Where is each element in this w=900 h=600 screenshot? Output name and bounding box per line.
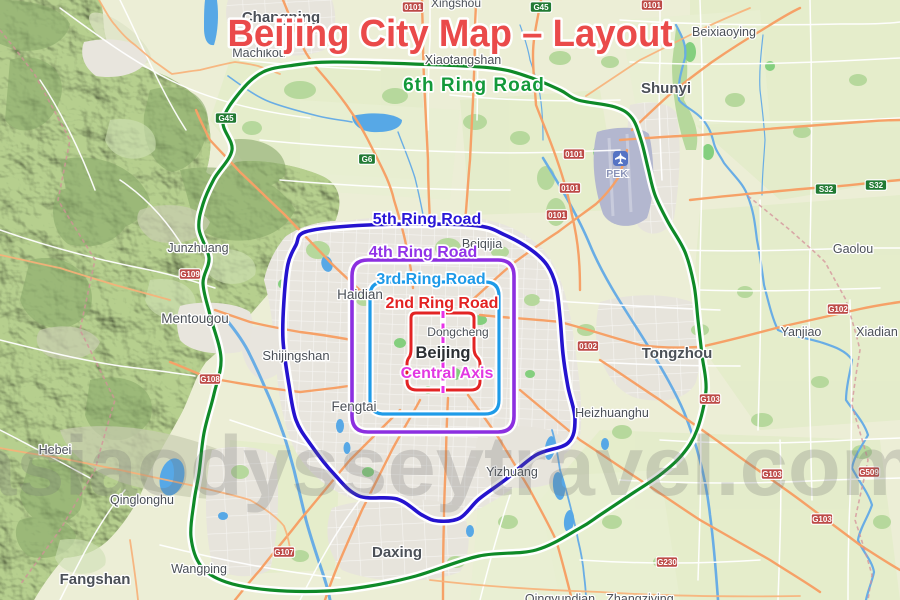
- svg-text:0101: 0101: [404, 3, 422, 12]
- svg-text:0102: 0102: [579, 342, 597, 351]
- svg-text:Zhangziying: Zhangziying: [606, 592, 673, 600]
- svg-text:Shijingshan: Shijingshan: [262, 348, 329, 363]
- svg-text:2nd Ring Road: 2nd Ring Road: [386, 295, 499, 312]
- svg-text:S32: S32: [869, 181, 884, 190]
- svg-text:Fengtai: Fengtai: [331, 399, 376, 414]
- svg-text:Tongzhou: Tongzhou: [642, 345, 713, 362]
- svg-text:4th Ring Road: 4th Ring Road: [369, 244, 477, 261]
- svg-text:G107: G107: [274, 548, 294, 557]
- svg-text:G109: G109: [180, 270, 200, 279]
- svg-text:Xiaotangshan: Xiaotangshan: [425, 53, 502, 67]
- svg-text:Beijing: Beijing: [415, 344, 470, 362]
- svg-text:G45: G45: [218, 114, 234, 123]
- svg-text:5th Ring Road: 5th Ring Road: [373, 211, 481, 228]
- svg-text:Shunyi: Shunyi: [641, 80, 691, 97]
- svg-text:PEK: PEK: [606, 168, 628, 180]
- svg-text:Beijing City Map – Layout: Beijing City Map – Layout: [228, 13, 673, 55]
- svg-text:Junzhuang: Junzhuang: [167, 241, 228, 255]
- svg-text:0101: 0101: [548, 211, 566, 220]
- svg-text:G103: G103: [812, 515, 832, 524]
- svg-text:S32: S32: [819, 185, 834, 194]
- svg-text:Beixiaoying: Beixiaoying: [692, 25, 756, 39]
- svg-text:0101: 0101: [565, 150, 583, 159]
- svg-text:Yanjiao: Yanjiao: [781, 325, 822, 339]
- svg-text:G102: G102: [828, 305, 848, 314]
- svg-text:Dongcheng: Dongcheng: [427, 325, 488, 339]
- svg-text:Wangping: Wangping: [171, 562, 227, 576]
- svg-text:Xingshou: Xingshou: [431, 0, 481, 10]
- svg-text:G108: G108: [200, 375, 220, 384]
- svg-text:Xiadian: Xiadian: [856, 325, 898, 339]
- svg-text:G230: G230: [657, 558, 677, 567]
- svg-text:3rd Ring Road: 3rd Ring Road: [376, 271, 485, 288]
- svg-text:Central Axis: Central Axis: [401, 365, 494, 382]
- svg-text:Gaolou: Gaolou: [833, 242, 873, 256]
- svg-text:Heizhuanghu: Heizhuanghu: [575, 406, 649, 420]
- svg-text:asiaodysseytravel.com: asiaodysseytravel.com: [0, 419, 900, 513]
- svg-text:G6: G6: [362, 155, 373, 164]
- svg-text:Haidian: Haidian: [337, 287, 383, 302]
- svg-text:Mentougou: Mentougou: [161, 311, 229, 326]
- svg-text:0101: 0101: [643, 1, 661, 10]
- svg-text:Fangshan: Fangshan: [60, 571, 131, 588]
- svg-text:0101: 0101: [561, 184, 579, 193]
- svg-text:G103: G103: [700, 395, 720, 404]
- svg-text:Daxing: Daxing: [372, 544, 422, 561]
- svg-text:G45: G45: [533, 3, 549, 12]
- svg-text:Qingyundian: Qingyundian: [525, 592, 595, 600]
- svg-text:6th Ring Road: 6th Ring Road: [403, 75, 545, 96]
